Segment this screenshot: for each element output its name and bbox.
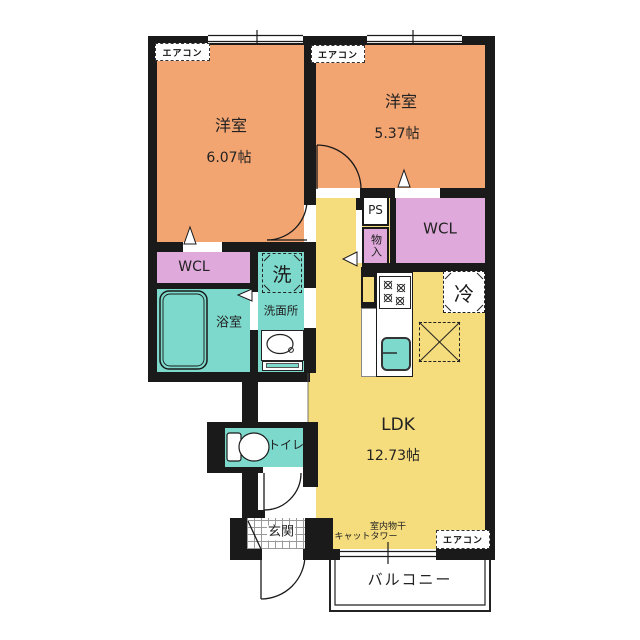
wall-left <box>148 36 157 382</box>
wall-right <box>485 36 495 560</box>
wall-between-bedrooms <box>304 43 316 198</box>
wall-hall-south <box>242 510 265 518</box>
bedroom1-size: 6.07帖 <box>206 150 251 166</box>
window-bedroom2 <box>367 34 462 43</box>
bathroom-label: 浴室 <box>216 317 242 332</box>
washstand-cabinet-slot <box>266 363 299 368</box>
wall-bottom-c <box>436 549 485 560</box>
indoor-drying-note: 室内物干 <box>370 522 406 532</box>
fridge-space: 冷 <box>443 271 485 313</box>
aircon-label-bedroom1: エアコン <box>155 43 210 61</box>
wall-toilet-east <box>303 422 318 487</box>
washer-label: 洗 <box>272 260 291 287</box>
wall-bath-south <box>148 372 310 382</box>
entrance-label: 玄関 <box>267 526 295 541</box>
wall-toilet-west <box>207 422 225 473</box>
opening-hall-entrance <box>265 510 303 518</box>
wall-bedroom1-south-b <box>222 242 316 252</box>
pipe-shaft-label: PS <box>368 204 383 218</box>
bedroom1-floor <box>157 44 304 242</box>
wall-pier <box>305 518 333 549</box>
ldk-size: 12.73帖 <box>366 448 420 464</box>
balcony-label: バルコニー <box>368 571 453 588</box>
washroom-label: 洗面所 <box>264 304 299 317</box>
wall-entrance-west <box>230 518 247 549</box>
washstand-counter <box>261 330 304 361</box>
cat-tower-note: キャットタワー <box>334 532 397 542</box>
storage-label: 物入 <box>368 234 384 258</box>
window-ldk <box>340 549 436 559</box>
kitchen-stub-notch <box>363 277 374 302</box>
opening-washroom-door <box>304 288 316 328</box>
bedroom2-name: 洋室 <box>385 93 417 111</box>
opening-bedroom1-door <box>304 205 316 242</box>
aircon-label-ldk: エアコン <box>436 530 490 549</box>
wall-bottom-a <box>230 549 262 560</box>
ldk-name: LDK <box>381 416 415 436</box>
pipe-shaft-box: PS <box>362 196 389 226</box>
wall-ps-east <box>390 196 396 263</box>
opening-bedroom2-door <box>316 188 360 198</box>
stove <box>379 276 411 309</box>
toilet-label: トイレ <box>268 439 304 453</box>
washer-space: 洗 <box>262 253 302 293</box>
bedroom1-name: 洋室 <box>215 117 247 135</box>
wcl-right-label: WCL <box>423 220 457 237</box>
storage-box: 物入 <box>362 227 389 265</box>
free-space-box <box>419 322 460 362</box>
wall-bottom-b <box>303 549 340 560</box>
kitchen-sink <box>381 337 411 371</box>
wcl-left-label: WCL <box>178 259 209 275</box>
wall-bedroom1-south-a <box>148 242 183 252</box>
opening-toilet-door <box>263 467 303 473</box>
aircon-text-2: エアコン <box>318 48 358 61</box>
fridge-label: 冷 <box>454 278 474 307</box>
opening-wcl-right-door <box>395 188 440 198</box>
opening-wcl-left-door <box>183 242 222 252</box>
aircon-text-1: エアコン <box>162 46 202 59</box>
bedroom2-size: 5.37帖 <box>374 126 419 142</box>
kitchen-side-panel <box>361 308 377 377</box>
bedroom2-floor <box>316 44 485 188</box>
aircon-label-bedroom2: エアコン <box>311 45 365 63</box>
wall-corridor2-west <box>242 382 258 422</box>
opening-bath-door <box>250 292 258 330</box>
aircon-text-3: エアコン <box>443 533 483 546</box>
wall-wcl-bath <box>157 283 250 289</box>
window-bedroom1 <box>208 34 303 43</box>
wall-bedroom2-south-b <box>440 188 485 198</box>
floor-plan: PS 物入 冷 洗 <box>0 0 640 640</box>
